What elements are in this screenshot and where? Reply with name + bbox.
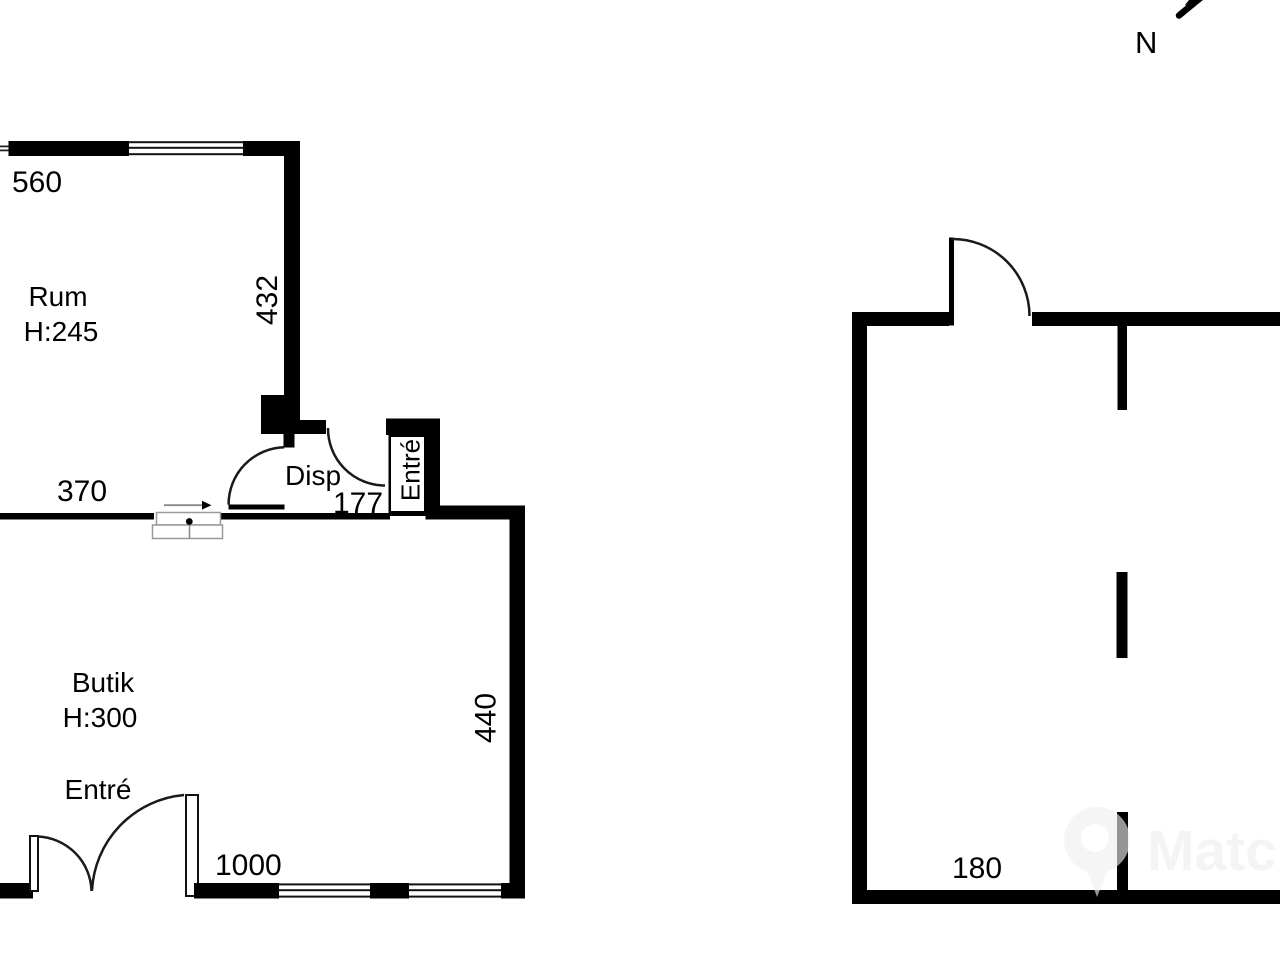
svg-text:370: 370 [57,475,107,508]
svg-text:177: 177 [333,487,383,520]
svg-text:180: 180 [952,852,1002,885]
svg-text:H:245: H:245 [24,316,99,347]
svg-text:Butik: Butik [72,667,135,698]
svg-text:560: 560 [12,166,62,199]
svg-text:432: 432 [251,275,284,325]
svg-text:Match: Match [1147,819,1280,883]
svg-text:N: N [1135,25,1157,60]
svg-text:Entré: Entré [65,774,132,805]
svg-text:H:300: H:300 [63,702,138,733]
svg-text:1000: 1000 [215,849,282,882]
svg-text:Rum: Rum [28,281,87,312]
svg-text:440: 440 [470,693,503,743]
svg-text:Entré: Entré [396,439,426,501]
